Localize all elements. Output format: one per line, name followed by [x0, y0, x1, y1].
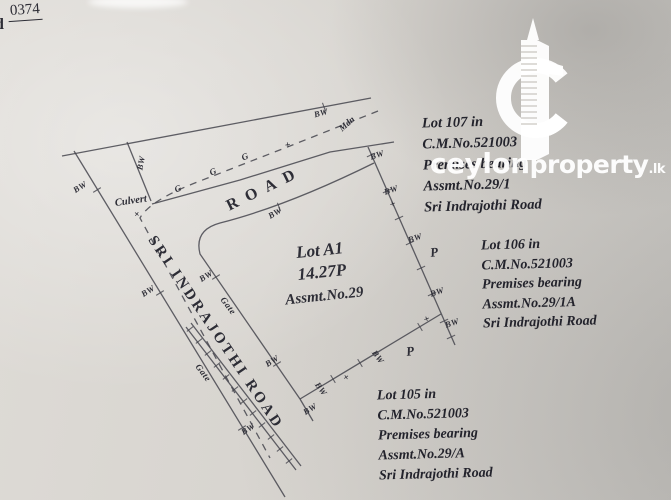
- culvert-line: [127, 142, 151, 201]
- watermark-brand-tld: .lk: [648, 162, 665, 177]
- road-edge-hatches: [187, 327, 292, 464]
- top-road-south-edge: [152, 142, 394, 204]
- boundary-ticks: [93, 103, 455, 431]
- lot-line: Sri Indrajothi Road: [483, 312, 597, 334]
- lot-105-annotation: Lot 105 in C.M.No.521003 Premises bearin…: [377, 384, 493, 487]
- lot-106-annotation: Lot 106 in C.M.No.521003 Premises bearin…: [481, 234, 597, 334]
- ceylonproperty-watermark: ceylonproperty.lk: [430, 147, 665, 180]
- left-road-east-edge-inner: [191, 323, 301, 466]
- lot-line: Premises bearing: [482, 273, 596, 295]
- plan-number-fragment: 0374: [7, 1, 42, 22]
- ceylonproperty-logo-icon: [488, 14, 598, 166]
- lot-line: Premises bearing: [378, 424, 492, 447]
- lot-line: Sri Indrajothi Road: [424, 194, 542, 218]
- p-mark: P: [405, 344, 415, 358]
- watermark-brand-bold: ceylon: [430, 147, 530, 180]
- edge-text-fragment: d: [0, 16, 4, 34]
- main-lot-label: Lot A1 14.27P Assmt.No.29: [280, 238, 365, 309]
- watermark-brand-regular: property: [530, 150, 649, 179]
- survey-plan-photo: BW BW BW BW BW BW BW BW BW BW BW BW BW B…: [0, 0, 671, 500]
- left-road-east-edge-outer: [186, 327, 296, 470]
- lot-line: Sri Indrajothi Road: [379, 464, 493, 487]
- p-mark: P: [429, 245, 439, 259]
- main-lot-area: 14.27P: [282, 259, 362, 284]
